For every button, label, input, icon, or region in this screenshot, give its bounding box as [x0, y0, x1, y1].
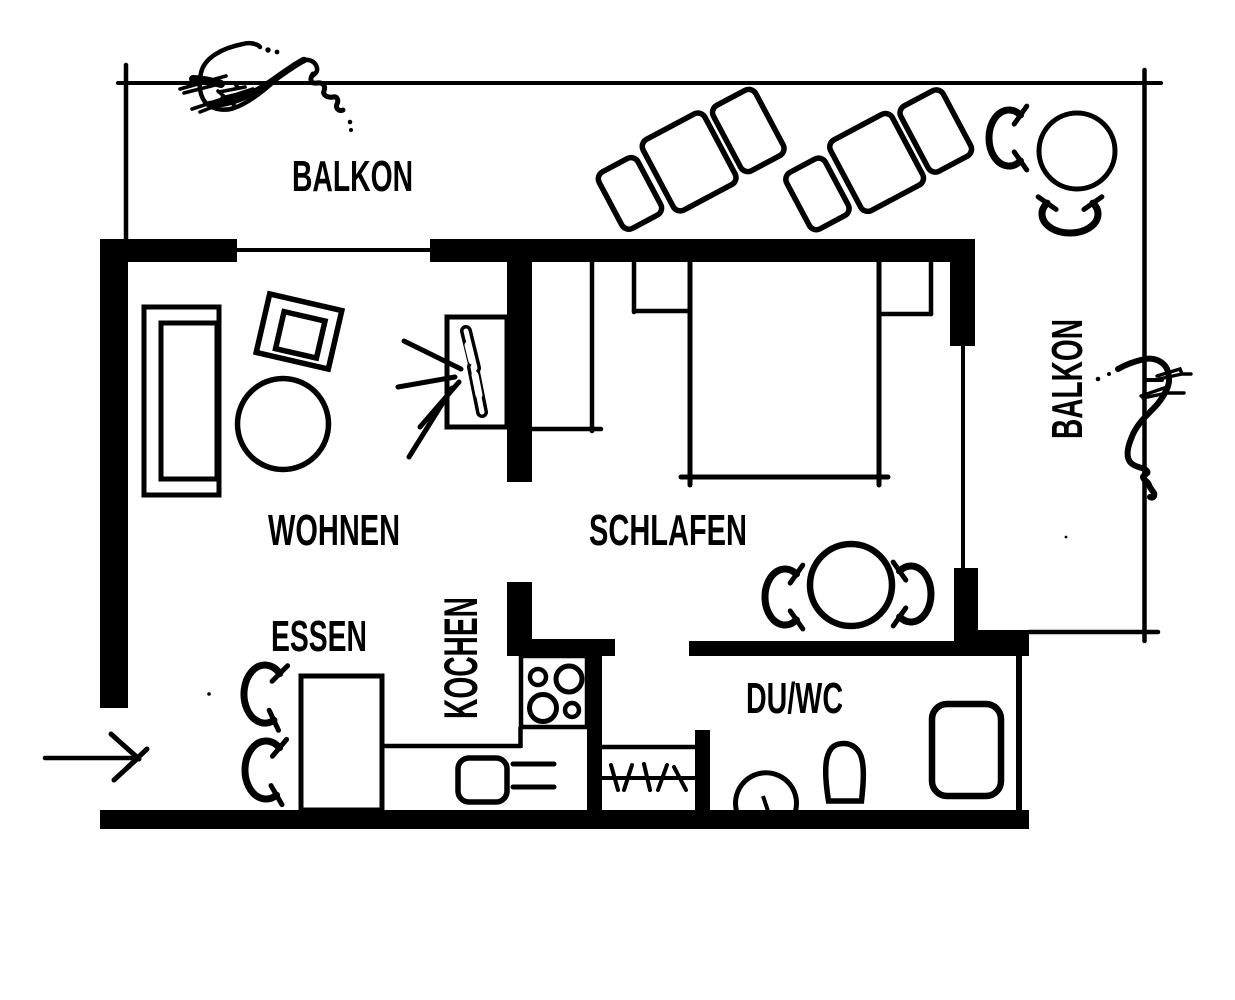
- svg-text:ESSEN: ESSEN: [271, 612, 367, 661]
- svg-text:BALKON: BALKON: [1043, 319, 1092, 439]
- svg-text:SCHLAFEN: SCHLAFEN: [589, 506, 747, 555]
- svg-text:BALKON: BALKON: [292, 152, 413, 201]
- svg-text:DU/WC: DU/WC: [746, 674, 843, 723]
- svg-text:KOCHEN: KOCHEN: [434, 597, 487, 719]
- svg-text:WOHNEN: WOHNEN: [268, 506, 400, 555]
